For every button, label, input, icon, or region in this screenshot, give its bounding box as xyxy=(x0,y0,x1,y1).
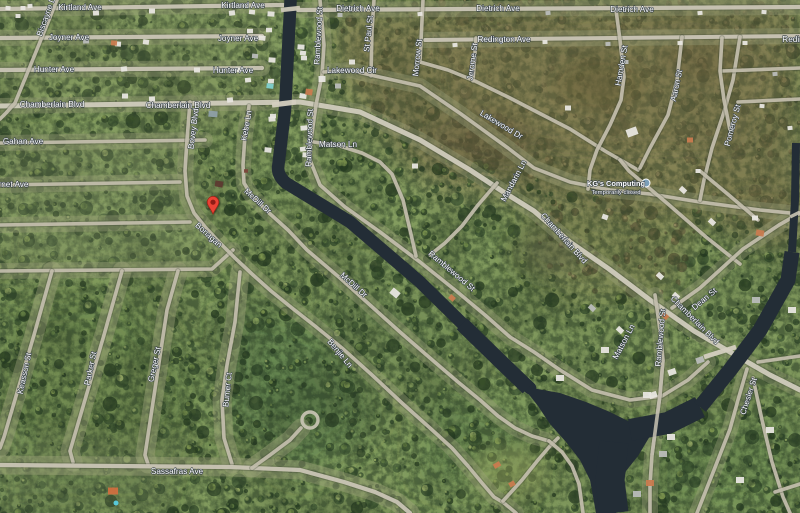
svg-text:Hunter Ave: Hunter Ave xyxy=(213,66,254,75)
svg-text:Joyner Ave: Joyner Ave xyxy=(218,34,259,43)
svg-text:Dietrich Ave: Dietrich Ave xyxy=(476,4,520,13)
svg-text:Gahan Ave: Gahan Ave xyxy=(3,137,44,146)
svg-text:Dietrich Ave: Dietrich Ave xyxy=(610,5,654,14)
svg-text:Sassafras Ave: Sassafras Ave xyxy=(151,467,204,476)
svg-text:KG's Computing: KG's Computing xyxy=(587,179,645,188)
svg-text:Kirtland Ave: Kirtland Ave xyxy=(221,1,265,10)
svg-text:Lakewood Cir: Lakewood Cir xyxy=(327,66,377,75)
svg-text:Chamberlain Blvd: Chamberlain Blvd xyxy=(146,101,211,110)
svg-text:Hunter Ave: Hunter Ave xyxy=(34,65,75,74)
svg-text:Dietrich Ave: Dietrich Ave xyxy=(336,4,380,13)
svg-text:Kirtland Ave: Kirtland Ave xyxy=(58,3,102,12)
svg-text:Joyner Ave: Joyner Ave xyxy=(49,33,90,42)
svg-text:Matson Ln: Matson Ln xyxy=(319,140,358,149)
svg-text:Chamberlain Blvd: Chamberlain Blvd xyxy=(20,100,85,109)
svg-text:Redington Ave: Redington Ave xyxy=(477,35,531,44)
svg-text:Redin: Redin xyxy=(782,35,800,44)
svg-text:Garnet Ave: Garnet Ave xyxy=(0,180,29,189)
svg-text:Temporarily closed: Temporarily closed xyxy=(591,190,640,196)
